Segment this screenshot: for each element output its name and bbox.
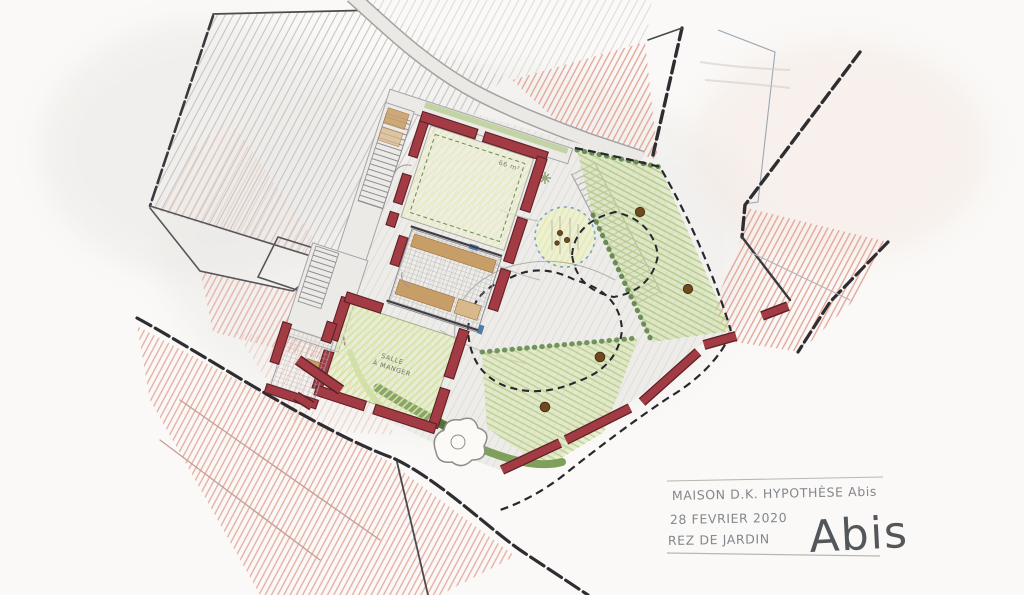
tree-trunk-south-1: [595, 352, 605, 362]
site-plan-sketch: 66 m² SALLE À MANGER: [0, 0, 1024, 595]
orchard-circle-tree: [535, 207, 595, 267]
tree-trunk-east-2: [683, 284, 692, 293]
version-stamp: Abis: [808, 507, 910, 563]
scanned-site-plan-page: 66 m² SALLE À MANGER: [0, 0, 1024, 595]
date-line: 28 FEVRIER 2020: [670, 510, 788, 527]
tree-trunk-south-2: [540, 402, 550, 412]
street-line: REZ DE JARDIN: [668, 531, 770, 548]
tree-trunk-east-1: [635, 207, 644, 216]
